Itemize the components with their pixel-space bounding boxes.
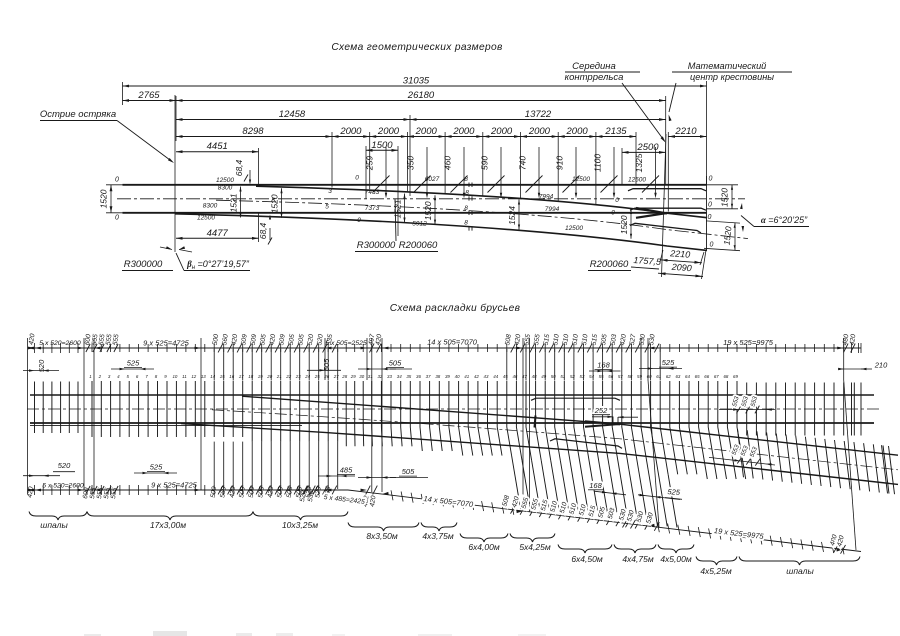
svg-text:7433: 7433 (365, 189, 380, 196)
svg-text:12500: 12500 (572, 176, 590, 183)
svg-text:12500: 12500 (216, 177, 234, 184)
svg-text:8: 8 (464, 176, 468, 183)
svg-text:1520: 1520 (722, 225, 734, 245)
svg-text:4х5,25м: 4х5,25м (700, 566, 732, 576)
svg-text:168: 168 (597, 361, 610, 370)
svg-text:7994: 7994 (539, 194, 554, 201)
svg-text:66: 66 (704, 374, 709, 379)
svg-text:37: 37 (426, 374, 431, 379)
svg-text:525: 525 (127, 359, 140, 368)
svg-text:4451: 4451 (207, 141, 228, 152)
svg-text:69: 69 (733, 374, 738, 379)
svg-text:1757,5: 1757,5 (633, 255, 662, 267)
svg-text:Середина: Середина (572, 61, 616, 72)
svg-text:55: 55 (599, 374, 604, 379)
svg-text:53: 53 (580, 374, 585, 379)
svg-text:42: 42 (474, 374, 479, 379)
svg-text:50: 50 (551, 374, 556, 379)
svg-text:43: 43 (484, 374, 489, 379)
svg-text:Схема геометрических размеров: Схема геометрических размеров (331, 42, 503, 53)
svg-text:505: 505 (402, 467, 415, 476)
svg-text:17х3,00м: 17х3,00м (150, 520, 186, 530)
svg-text:0: 0 (708, 214, 712, 221)
svg-text:45: 45 (503, 374, 508, 379)
svg-text:7373: 7373 (365, 205, 380, 212)
svg-text:2000: 2000 (566, 126, 589, 137)
svg-text:6027: 6027 (425, 176, 440, 183)
svg-text:2765: 2765 (137, 90, 160, 101)
svg-text:49: 49 (541, 374, 546, 379)
svg-text:1521: 1521 (229, 193, 239, 212)
svg-text:14 x 505=7070: 14 x 505=7070 (427, 338, 478, 347)
svg-text:5х4,25м: 5х4,25м (519, 542, 551, 552)
svg-text:8298: 8298 (242, 126, 264, 137)
svg-text:525: 525 (667, 487, 681, 497)
svg-text:505: 505 (322, 358, 331, 371)
svg-text:5: 5 (325, 204, 329, 211)
svg-text:910: 910 (555, 156, 565, 170)
svg-text:α =6°20’25”: α =6°20’25” (761, 215, 808, 225)
svg-text:1524: 1524 (507, 206, 517, 225)
svg-text:4х3,75м: 4х3,75м (422, 531, 454, 541)
svg-text:16: 16 (229, 374, 234, 379)
svg-text:48: 48 (532, 374, 537, 379)
svg-text:35: 35 (406, 374, 411, 379)
svg-text:8х3,50м: 8х3,50м (366, 531, 398, 541)
svg-text:68,4: 68,4 (258, 222, 268, 239)
svg-text:0: 0 (355, 175, 359, 182)
svg-text:65: 65 (695, 374, 700, 379)
svg-text:9 x 525=4725: 9 x 525=4725 (143, 339, 189, 348)
svg-text:350: 350 (406, 156, 416, 170)
svg-text:5912: 5912 (412, 221, 427, 228)
svg-text:62: 62 (666, 374, 671, 379)
svg-text:15: 15 (220, 374, 225, 379)
svg-text:R300000: R300000 (357, 240, 396, 251)
svg-text:12500: 12500 (197, 215, 215, 222)
svg-text:0: 0 (708, 202, 712, 209)
svg-text:31035: 31035 (403, 76, 430, 87)
svg-text:1500: 1500 (371, 140, 393, 151)
svg-text:26180: 26180 (407, 90, 435, 101)
svg-text:6х4,00м: 6х4,00м (468, 542, 500, 552)
svg-text:2090: 2090 (670, 262, 692, 273)
svg-text:4х5,00м: 4х5,00м (660, 554, 692, 564)
svg-text:1520: 1520 (99, 189, 109, 208)
svg-text:27: 27 (333, 374, 339, 379)
svg-text:12458: 12458 (279, 109, 306, 120)
svg-text:25: 25 (314, 374, 320, 379)
svg-text:2: 2 (98, 374, 102, 379)
svg-text:шпалы: шпалы (786, 566, 814, 576)
svg-text:R200060: R200060 (590, 259, 629, 270)
svg-text:13722: 13722 (525, 109, 552, 120)
svg-text:39: 39 (445, 374, 450, 379)
svg-text:520: 520 (58, 461, 71, 470)
svg-text:8: 8 (464, 220, 468, 227)
svg-text:210: 210 (874, 361, 888, 370)
svg-text:252: 252 (594, 406, 608, 415)
svg-text:1520: 1520 (619, 215, 629, 234)
svg-text:9 x 525=4725: 9 x 525=4725 (151, 481, 197, 490)
svg-text:26: 26 (323, 374, 329, 379)
svg-text:4х4,75м: 4х4,75м (622, 554, 654, 564)
svg-text:40: 40 (455, 374, 460, 379)
svg-text:5 x 505=2525: 5 x 505=2525 (325, 340, 367, 347)
svg-text:460: 460 (443, 156, 453, 170)
svg-text:33: 33 (387, 374, 392, 379)
svg-text:34: 34 (397, 374, 402, 379)
svg-text:6х4,50м: 6х4,50м (571, 554, 603, 564)
svg-text:8: 8 (465, 190, 469, 197)
svg-text:2000: 2000 (339, 126, 362, 137)
svg-text:14: 14 (210, 374, 215, 379)
svg-text:68,4: 68,4 (234, 159, 244, 176)
svg-text:шпалы: шпалы (40, 520, 68, 530)
svg-text:259: 259 (365, 156, 375, 171)
svg-text:4477: 4477 (207, 228, 229, 239)
svg-text:контррельса: контррельса (565, 72, 624, 83)
svg-text:41: 41 (464, 374, 469, 379)
svg-text:0: 0 (710, 242, 714, 249)
svg-text:0: 0 (709, 176, 713, 183)
svg-text:30: 30 (359, 374, 364, 379)
svg-text:Математический: Математический (688, 61, 767, 71)
svg-text:168: 168 (589, 481, 602, 490)
svg-text:44: 44 (493, 374, 498, 379)
svg-text:2135: 2135 (604, 126, 627, 137)
svg-text:12: 12 (191, 374, 196, 379)
svg-text:52: 52 (570, 374, 575, 379)
svg-text:20: 20 (266, 374, 272, 379)
svg-text:17: 17 (239, 374, 244, 379)
svg-text:67: 67 (714, 374, 719, 379)
svg-text:54: 54 (589, 374, 594, 379)
svg-text:2000: 2000 (528, 126, 551, 137)
svg-text:2000: 2000 (415, 126, 438, 137)
svg-text:12500: 12500 (565, 225, 583, 232)
svg-text:19 x 525=9975: 19 x 525=9975 (723, 338, 774, 347)
svg-text:Острие остряка: Острие остряка (40, 109, 116, 120)
svg-text:R200060: R200060 (399, 240, 438, 251)
svg-text:1521: 1521 (393, 199, 403, 218)
svg-text:3: 3 (328, 188, 332, 195)
svg-text:36: 36 (416, 374, 421, 379)
svg-text:1325: 1325 (634, 153, 644, 172)
svg-text:590: 590 (480, 156, 490, 170)
svg-text:8300: 8300 (203, 203, 218, 210)
svg-text:1100: 1100 (593, 154, 603, 173)
svg-text:51: 51 (560, 374, 565, 379)
svg-text:0: 0 (611, 210, 615, 217)
svg-text:29: 29 (350, 374, 356, 379)
svg-text:0: 0 (615, 197, 619, 204)
svg-text:5 x 520=2600: 5 x 520=2600 (42, 483, 84, 490)
svg-text:13: 13 (201, 374, 206, 379)
svg-text:505: 505 (389, 359, 402, 368)
svg-text:22: 22 (285, 374, 291, 379)
svg-text:64: 64 (685, 374, 690, 379)
svg-text:1520: 1520 (720, 188, 730, 207)
svg-text:46: 46 (512, 374, 517, 379)
svg-text:10: 10 (172, 374, 177, 379)
svg-text:57: 57 (618, 374, 623, 379)
svg-text:R300000: R300000 (124, 259, 163, 270)
svg-text:центр крестовины: центр крестовины (690, 72, 774, 82)
svg-text:5 x 520=2600: 5 x 520=2600 (39, 340, 81, 347)
svg-text:Схема раскладки брусьев: Схема раскладки брусьев (390, 302, 521, 314)
svg-text:11: 11 (182, 374, 187, 379)
svg-text:525: 525 (150, 463, 163, 472)
svg-text:59: 59 (637, 374, 642, 379)
svg-text:61: 61 (656, 374, 661, 379)
svg-text:21: 21 (276, 374, 282, 379)
svg-text:18: 18 (248, 374, 253, 379)
svg-text:2000: 2000 (452, 126, 475, 137)
svg-text:68: 68 (723, 374, 728, 379)
svg-text:60: 60 (647, 374, 652, 379)
svg-text:0: 0 (115, 215, 119, 222)
svg-text:23: 23 (295, 374, 301, 379)
svg-text:2210: 2210 (669, 248, 691, 259)
svg-text:525: 525 (662, 358, 675, 367)
svg-text:2000: 2000 (490, 126, 513, 137)
svg-text:8: 8 (464, 205, 468, 212)
svg-text:2210: 2210 (674, 126, 697, 137)
svg-text:1520: 1520 (270, 194, 280, 213)
svg-text:740: 740 (518, 156, 528, 170)
svg-text:0: 0 (115, 177, 119, 184)
svg-text:8300: 8300 (218, 185, 233, 192)
svg-text:38: 38 (435, 374, 440, 379)
svg-text:2000: 2000 (377, 126, 400, 137)
svg-text:56: 56 (608, 374, 613, 379)
svg-text:63: 63 (675, 374, 680, 379)
svg-text:10х3,25м: 10х3,25м (282, 520, 318, 530)
svg-text:58: 58 (627, 374, 632, 379)
svg-text:28: 28 (341, 374, 347, 379)
svg-text:12500: 12500 (628, 177, 646, 184)
svg-text:7994: 7994 (545, 206, 560, 213)
svg-text:485: 485 (340, 466, 353, 475)
svg-text:24: 24 (304, 374, 310, 379)
svg-text:31: 31 (368, 374, 373, 379)
svg-text:0: 0 (357, 217, 361, 224)
svg-text:1520: 1520 (423, 201, 433, 220)
svg-text:19: 19 (258, 374, 263, 379)
